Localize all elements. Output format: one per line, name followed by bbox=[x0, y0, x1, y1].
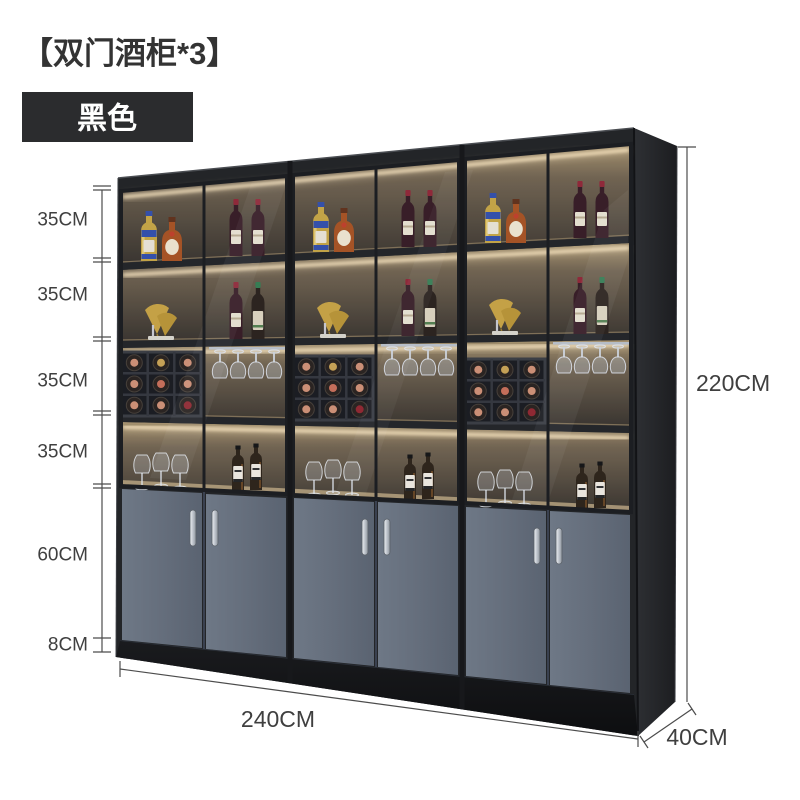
handle bbox=[534, 528, 540, 564]
handle bbox=[212, 510, 218, 546]
segment-height-label-5: 60CM bbox=[37, 545, 88, 566]
cabinet-side-panel bbox=[634, 128, 677, 736]
product-image: 35CM 35CM 35CM 35CM 60CM 8CM 220CM 240CM… bbox=[0, 0, 800, 800]
width-dimension-label: 240CM bbox=[241, 706, 315, 732]
glass-doors bbox=[121, 144, 631, 512]
handle bbox=[362, 519, 368, 555]
handle bbox=[384, 519, 390, 555]
segment-height-label-6: 8CM bbox=[48, 635, 88, 656]
segment-height-label-1: 35CM bbox=[37, 210, 88, 231]
segment-height-label-4: 35CM bbox=[37, 442, 88, 463]
handle bbox=[556, 528, 562, 564]
depth-dimension-label: 40CM bbox=[666, 724, 727, 750]
handle bbox=[190, 510, 196, 546]
color-variant-badge: 黑色 bbox=[22, 92, 193, 142]
height-dimension-label: 220CM bbox=[696, 370, 770, 396]
height-dimension-line bbox=[678, 147, 696, 702]
wine-cabinet-illustration: 35CM 35CM 35CM 35CM 60CM 8CM 220CM 240CM… bbox=[0, 0, 800, 800]
wine-cabinet bbox=[116, 128, 677, 736]
left-dimension-line bbox=[93, 186, 111, 652]
product-title: 【双门酒柜*3】 bbox=[22, 36, 237, 71]
segment-height-label-2: 35CM bbox=[37, 285, 88, 306]
badge-label: 黑色 bbox=[77, 103, 137, 136]
segment-height-label-3: 35CM bbox=[37, 371, 88, 392]
